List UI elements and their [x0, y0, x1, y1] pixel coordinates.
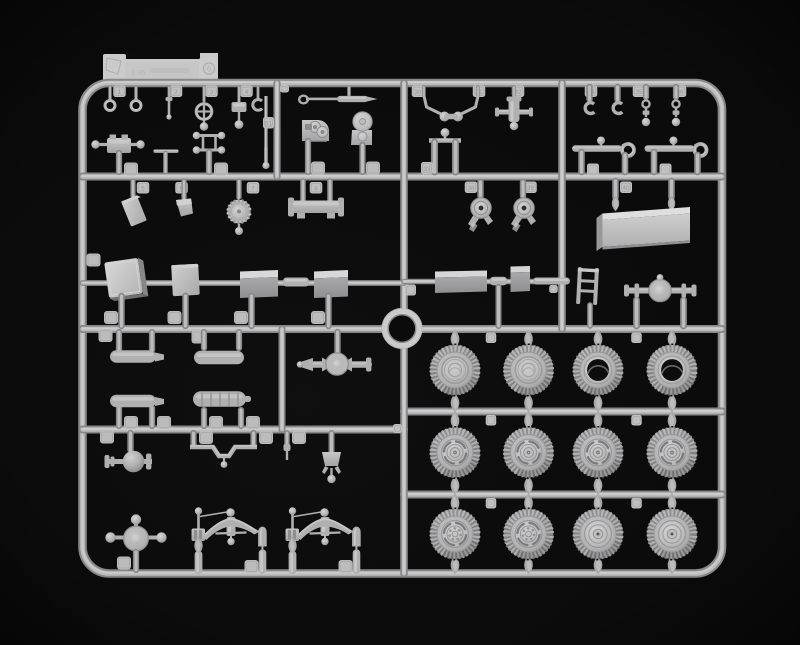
svg-text:51: 51 — [265, 121, 272, 128]
svg-text:3: 3 — [210, 89, 214, 96]
svg-text:1: 1 — [118, 89, 122, 96]
svg-text:6: 6 — [207, 65, 212, 74]
svg-text:40: 40 — [623, 185, 630, 192]
svg-text:30: 30 — [415, 89, 422, 96]
svg-text:5: 5 — [141, 186, 145, 193]
svg-text:1:35: 1:35 — [131, 68, 146, 77]
svg-text:33: 33 — [424, 166, 431, 173]
svg-text:8: 8 — [314, 186, 318, 193]
svg-text:38: 38 — [468, 185, 475, 192]
svg-text:2: 2 — [174, 89, 178, 96]
svg-text:7: 7 — [251, 186, 255, 193]
svg-text:4: 4 — [245, 89, 249, 96]
svg-text:35: 35 — [636, 89, 643, 96]
svg-text:39: 39 — [527, 185, 534, 192]
